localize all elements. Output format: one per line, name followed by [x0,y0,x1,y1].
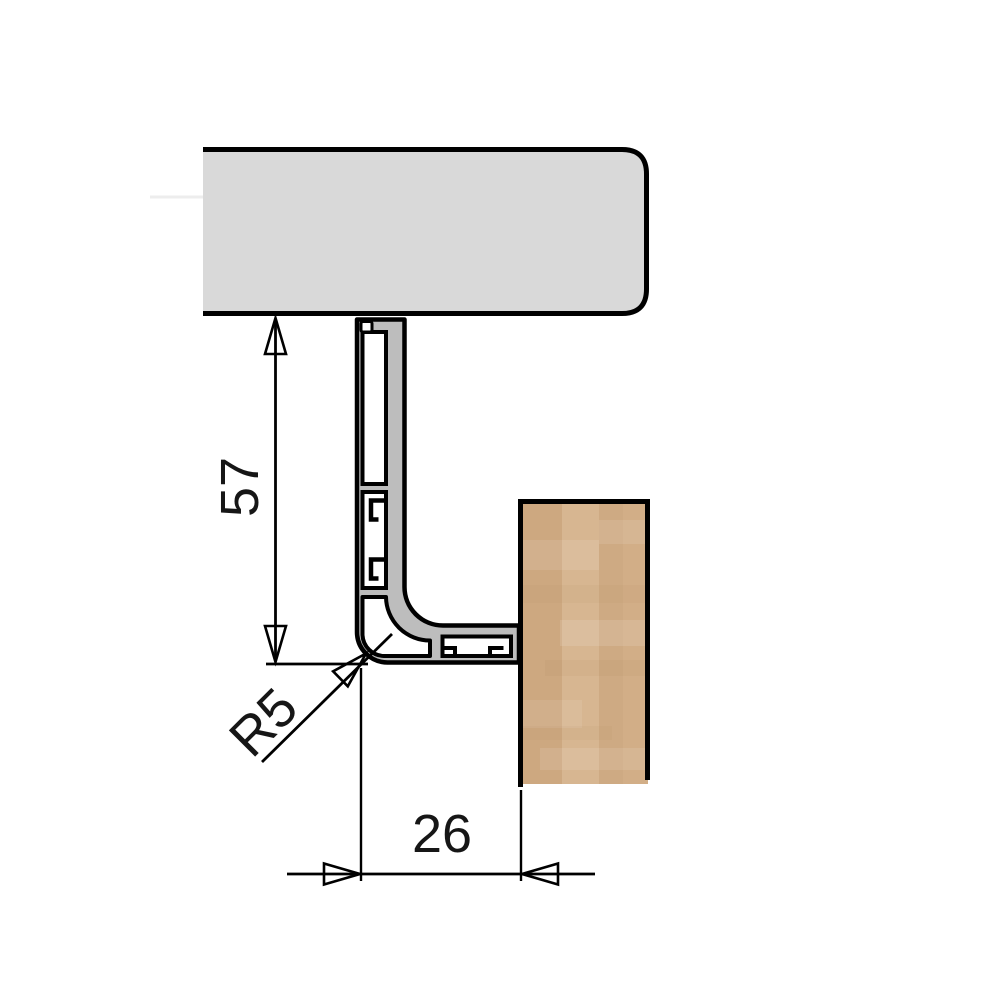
wood-panel [520,499,650,787]
technical-drawing-canvas: 57 R5 26 [0,0,1000,1000]
countertop-slab-fill [203,147,649,316]
dimension-radius-label: R5 [218,677,309,768]
dimension-width-label: 26 [412,804,472,864]
dimension-height: 57 [210,318,368,664]
profile-chamber-middle [363,492,387,588]
profile-top-notch [361,322,372,333]
dimension-height-label: 57 [210,457,270,517]
profile-chamber-upper [363,332,387,484]
aluminum-profile [357,320,519,663]
countertop-slab [203,147,649,316]
profile-section-drawing: 57 R5 26 [0,0,1000,1000]
dimension-radius: R5 [218,634,392,768]
